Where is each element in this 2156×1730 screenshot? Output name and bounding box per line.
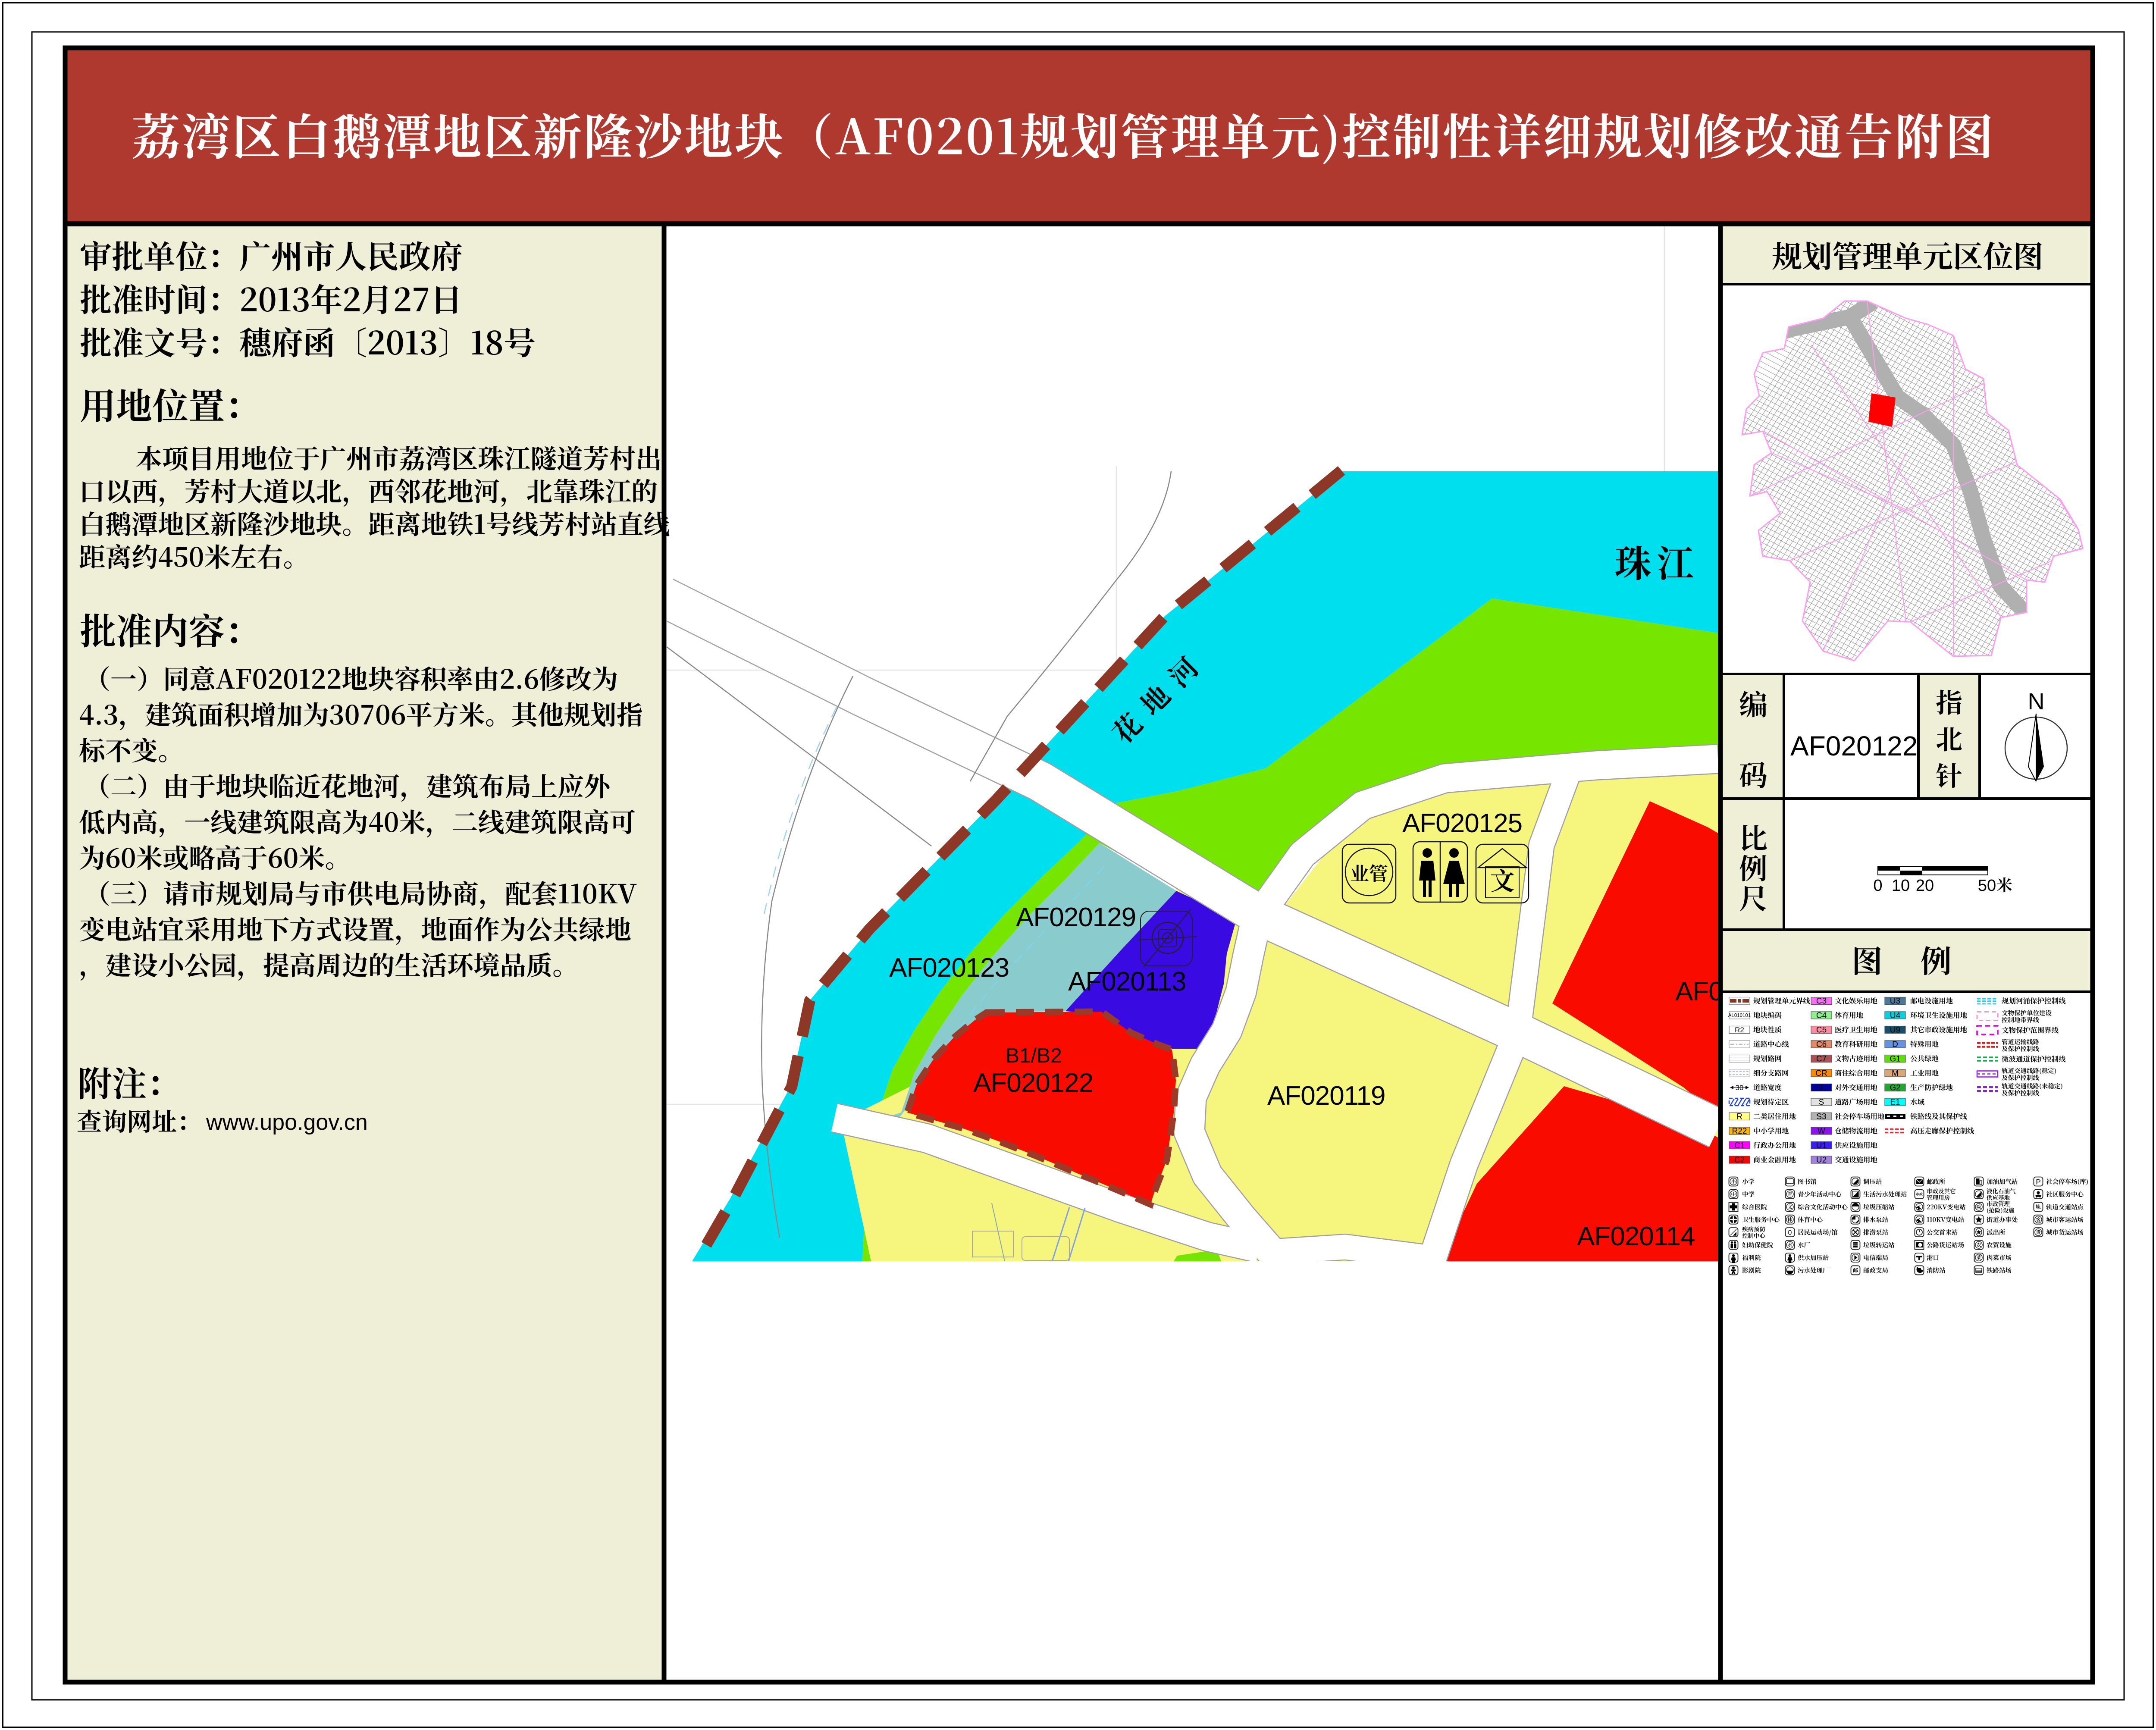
svg-text:P: P [2036,1178,2040,1186]
svg-text:D: D [1892,1040,1898,1049]
svg-text:20: 20 [1916,877,1934,895]
svg-text:R: R [1736,1112,1742,1121]
svg-text:B1/B2: B1/B2 [1006,1044,1062,1067]
svg-text:AF020129: AF020129 [1016,903,1136,932]
svg-text:AF020122: AF020122 [1790,730,1918,762]
svg-text:S3: S3 [1816,1112,1826,1121]
svg-text:U2: U2 [1816,1156,1827,1165]
svg-text:G1: G1 [1890,1054,1900,1063]
svg-text:0: 0 [1788,1229,1792,1237]
svg-text:C6: C6 [1816,1040,1827,1049]
svg-text:30: 30 [1736,1084,1744,1092]
svg-text:www.upo.gov.cn: www.upo.gov.cn [206,1110,368,1135]
svg-text:R22: R22 [1732,1127,1747,1136]
svg-text:U4: U4 [1890,1011,1901,1020]
svg-text:M: M [1892,1069,1899,1078]
svg-text:C3: C3 [1816,997,1827,1006]
svg-text:C4: C4 [1816,1011,1827,1020]
svg-text:U3: U3 [1890,997,1900,1006]
svg-text:U9: U9 [1890,1025,1900,1034]
svg-text:C1: C1 [1734,1141,1745,1150]
svg-text:AF020122: AF020122 [973,1068,1093,1098]
svg-text:S: S [1819,1098,1824,1107]
svg-text:AF020113: AF020113 [1068,967,1186,997]
svg-text:C2: C2 [1734,1156,1745,1165]
svg-text:AF020123: AF020123 [889,953,1009,983]
svg-text:AF020119: AF020119 [1267,1081,1385,1111]
svg-text:CR: CR [1815,1069,1827,1078]
svg-text:E1: E1 [1890,1098,1900,1107]
svg-text:AL010101: AL010101 [1728,1013,1751,1019]
svg-text:T: T [1819,1083,1824,1092]
svg-text:10: 10 [1892,877,1910,895]
svg-text:N: N [2028,689,2045,715]
svg-text:AF020114: AF020114 [1577,1222,1695,1251]
svg-text:50: 50 [1978,877,1996,895]
svg-text:R2: R2 [1735,1026,1744,1034]
svg-text:W: W [1818,1127,1825,1136]
svg-text:G2: G2 [1890,1083,1900,1092]
svg-text:AF020125: AF020125 [1402,809,1522,838]
svg-text:0: 0 [1873,877,1882,895]
svg-text:C7: C7 [1816,1054,1827,1063]
svg-text:U1: U1 [1816,1141,1827,1150]
svg-text:C5: C5 [1816,1025,1827,1034]
